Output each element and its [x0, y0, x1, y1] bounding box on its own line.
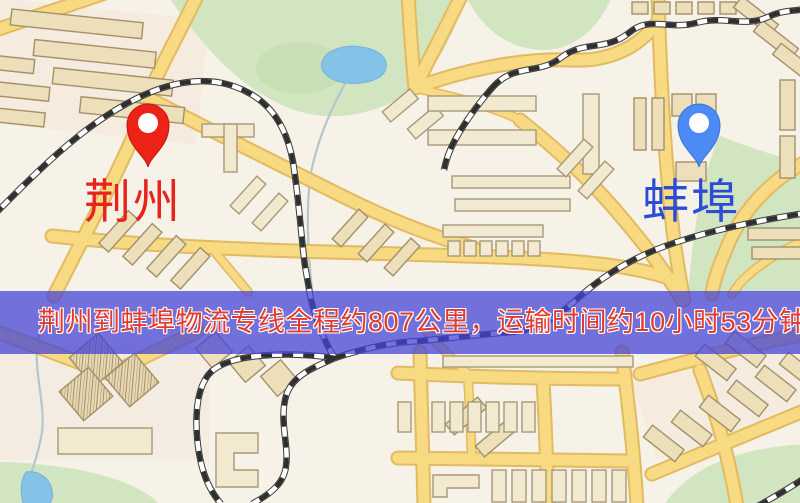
route-info-text: 荆州到蚌埠物流专线全程约807公里，运输时间约10小时53分钟. — [38, 309, 800, 336]
bengbu-pin-hole — [689, 113, 709, 133]
jingzhou-label: 荆州 — [84, 178, 182, 225]
lake — [322, 46, 387, 83]
static-map-image: 荆州 蚌埠 荆州到蚌埠物流专线全程约807公里，运输时间约10小时53分钟. — [0, 0, 800, 503]
route-info-banner: 荆州到蚌埠物流专线全程约807公里，运输时间约10小时53分钟. — [0, 291, 800, 354]
map-canvas — [0, 0, 800, 503]
bengbu-label: 蚌埠 — [642, 178, 740, 225]
jingzhou-pin-hole — [138, 113, 158, 133]
